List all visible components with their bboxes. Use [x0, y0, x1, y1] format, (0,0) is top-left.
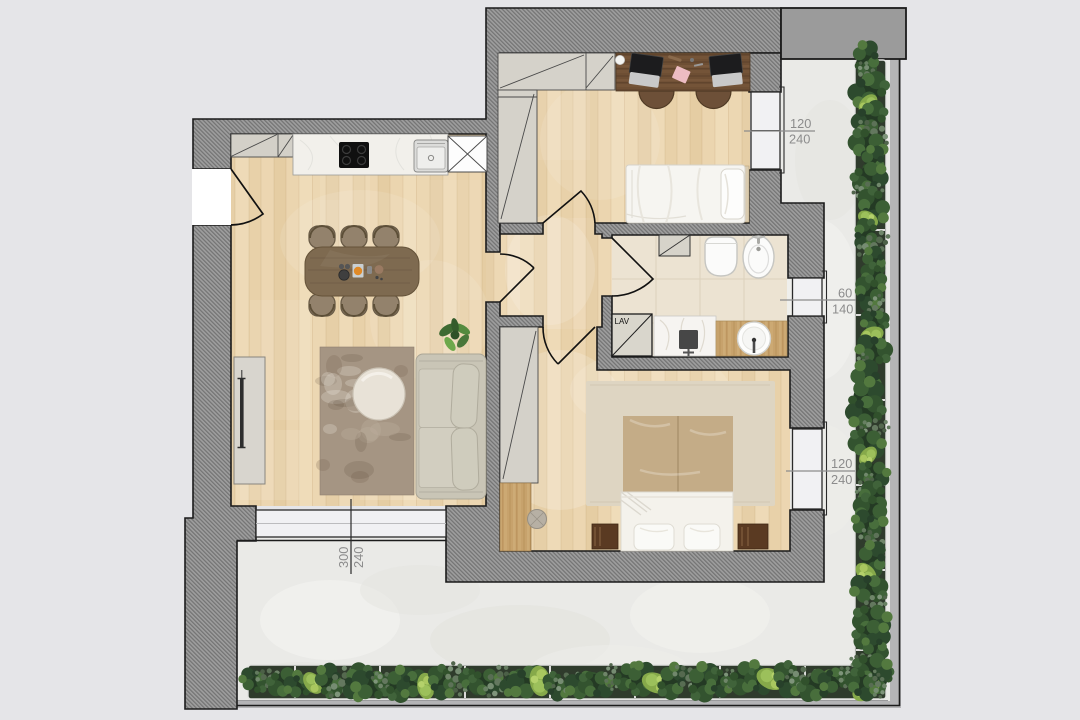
- svg-text:120: 120: [790, 116, 811, 131]
- svg-text:300: 300: [336, 547, 351, 568]
- svg-text:240: 240: [831, 472, 852, 487]
- svg-text:LAV: LAV: [615, 317, 630, 326]
- svg-text:240: 240: [351, 547, 366, 568]
- svg-text:60: 60: [838, 286, 852, 301]
- svg-text:140: 140: [832, 302, 853, 317]
- svg-text:120: 120: [831, 456, 852, 471]
- svg-text:240: 240: [789, 132, 810, 147]
